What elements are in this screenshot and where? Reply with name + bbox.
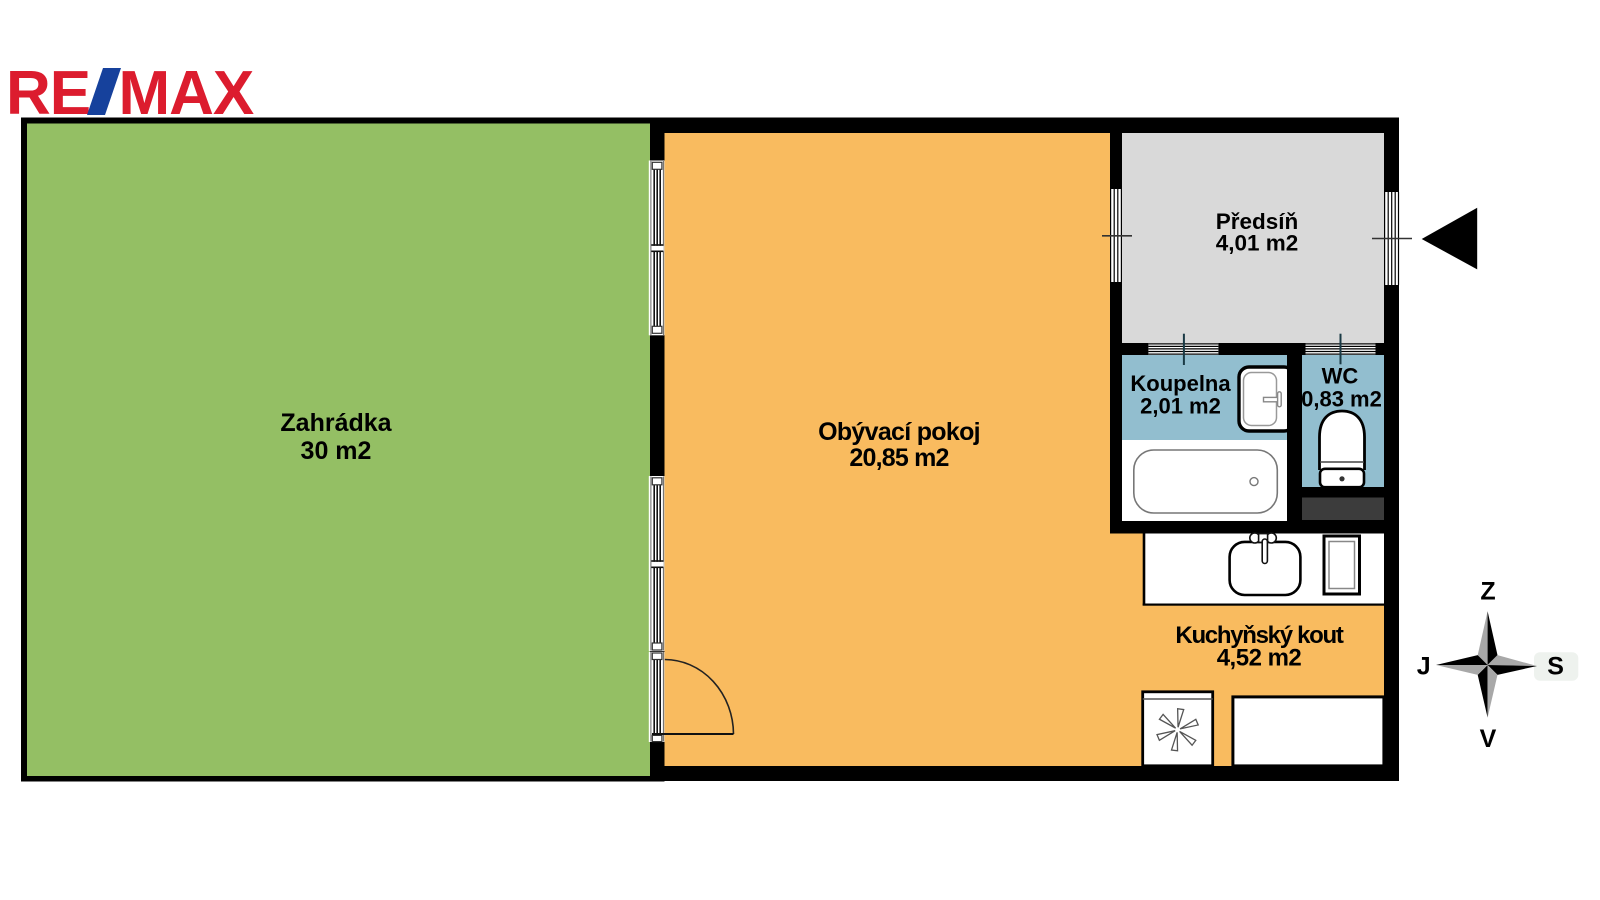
svg-text:Z: Z xyxy=(1480,578,1495,606)
svg-text:WC: WC xyxy=(1322,364,1359,389)
svg-text:RE: RE xyxy=(6,59,90,128)
svg-text:2,01 m2: 2,01 m2 xyxy=(1140,394,1221,419)
svg-text:MAX: MAX xyxy=(119,59,254,128)
svg-text:Koupelna: Koupelna xyxy=(1130,371,1231,396)
svg-text:Zahrádka: Zahrádka xyxy=(280,409,392,437)
svg-text:4,52 m2: 4,52 m2 xyxy=(1217,644,1302,671)
svg-text:20,85 m2: 20,85 m2 xyxy=(849,444,948,472)
svg-text:30 m2: 30 m2 xyxy=(301,437,372,465)
svg-text:4,01 m2: 4,01 m2 xyxy=(1216,231,1299,256)
svg-text:0,83 m2: 0,83 m2 xyxy=(1301,387,1382,412)
svg-text:J: J xyxy=(1417,653,1431,681)
svg-text:S: S xyxy=(1547,652,1564,680)
svg-text:Obývací pokoj: Obývací pokoj xyxy=(818,418,980,446)
svg-text:V: V xyxy=(1480,725,1497,753)
